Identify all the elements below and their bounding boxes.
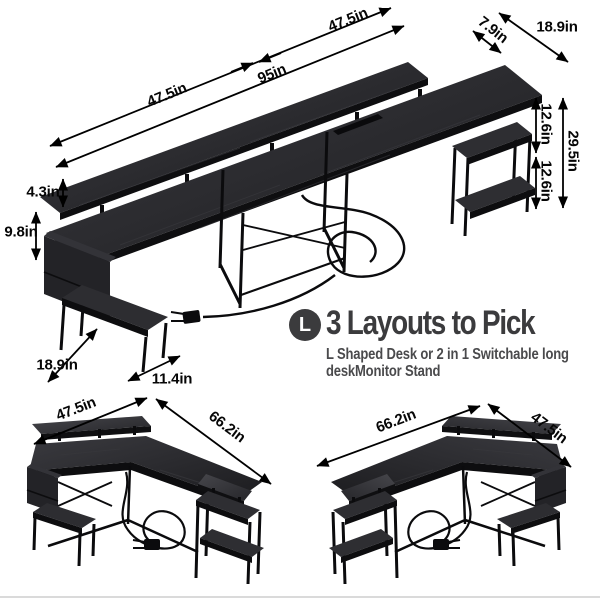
dimension-label-riser-height: 4.3in: [26, 184, 59, 201]
power-plug-icon: [171, 310, 201, 324]
dimension-label-overall-height: 29.5in: [565, 130, 582, 171]
layouts-heading-subtitle: L Shaped Desk or 2 in 1 Switchable long …: [326, 347, 569, 380]
dimension-label-bag-height: 9.8in: [4, 224, 37, 241]
l-shaped-desk-badge-icon: L: [289, 309, 321, 341]
l-desk-right-illustration: [329, 416, 566, 584]
layouts-heading-title: 3 Layouts to Pick: [326, 304, 534, 343]
subtitle-line-1: L Shaped Desk or 2 in 1 Switchable long: [326, 347, 569, 364]
bottom-divider: [0, 596, 600, 598]
dimension-label-upper-shelf-gap: 12.6in: [538, 103, 555, 144]
product-dimension-diagram: 47.5in 47.5in 95in 7.9in 18.9in 4.3in 9.…: [0, 0, 600, 600]
power-cord: [302, 195, 404, 277]
dimension-label-shelf-width: 11.4in: [152, 371, 193, 388]
l-desk-left-illustration: [27, 416, 264, 584]
dimension-label-lower-shelf-gap: 12.6in: [538, 160, 555, 201]
diagram-artwork: [0, 0, 600, 600]
dimension-label-left-end-depth: 18.9in: [36, 357, 77, 374]
dimension-label-desk-depth: 18.9in: [536, 19, 577, 36]
subtitle-line-2: deskMonitor Stand: [326, 364, 569, 381]
